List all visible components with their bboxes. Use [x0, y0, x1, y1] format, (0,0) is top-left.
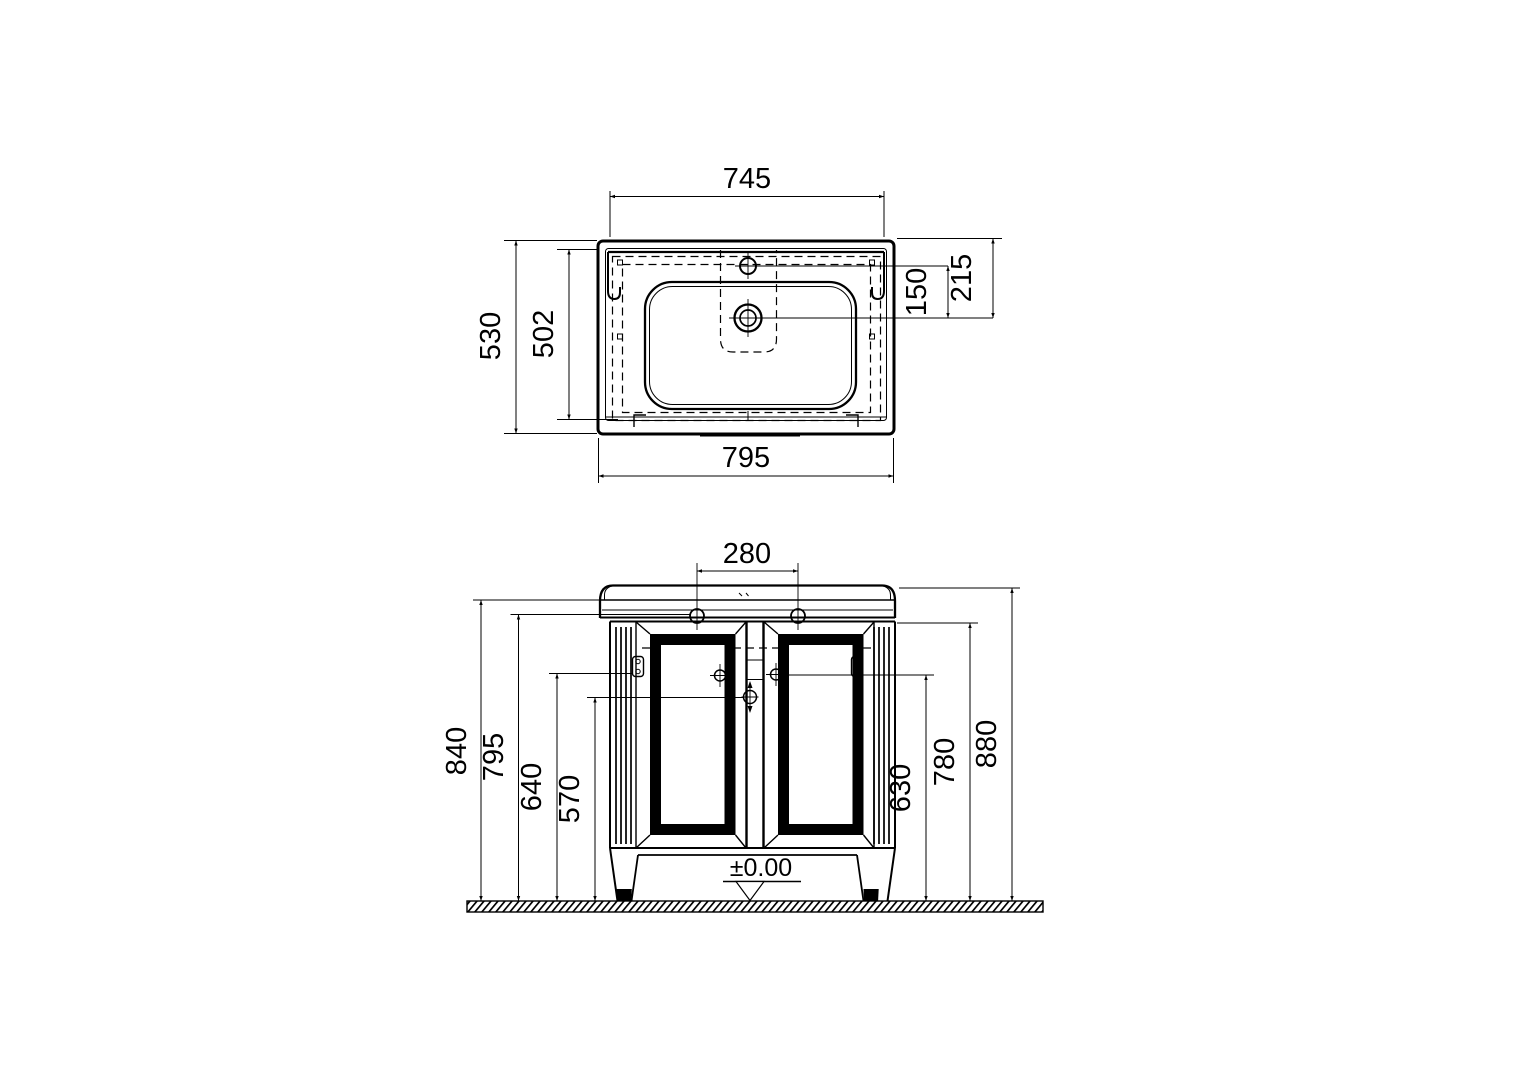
dim-hole-spacing: 280: [697, 538, 798, 571]
drain-hole: [729, 299, 767, 337]
floor-level-label: ±0.00: [730, 854, 792, 882]
right-door-panel: [789, 645, 853, 824]
dim-280-label: 280: [723, 538, 771, 570]
dim-width-top: 745: [610, 163, 884, 237]
dim-502-label: 502: [528, 310, 560, 358]
dim-150-label: 150: [901, 268, 933, 316]
dim-880-label: 880: [971, 720, 1003, 768]
drain-crosshair: [729, 299, 767, 337]
basin-outer-edge: [598, 241, 894, 434]
rim-recess-left: [608, 252, 620, 299]
fixing-marker: [618, 260, 623, 265]
basin-front-profile: [600, 586, 895, 619]
basin-plan-outline: [598, 241, 894, 435]
dim-780: 780: [897, 623, 978, 901]
drawing-page: 745 795 530 502 150 215: [0, 0, 1530, 1080]
hinge-left: [633, 657, 644, 677]
dim-840: 840: [441, 600, 600, 901]
fixing-marker: [618, 334, 623, 339]
dim-745-label: 745: [723, 163, 771, 195]
dim-570-label: 570: [554, 775, 586, 823]
faucet-deck-hidden-band: [721, 250, 777, 352]
top-view: 745 795 530 502 150 215: [475, 163, 1002, 483]
dim-795-front-label: 795: [478, 733, 510, 781]
dim-840-label: 840: [441, 727, 473, 775]
mounting-holes: [690, 563, 805, 630]
cabinet-left-door: [636, 622, 746, 848]
bowl-outer: [645, 282, 856, 409]
center-stile: [742, 622, 764, 848]
dim-640-label: 640: [516, 763, 548, 811]
floor-level-marker: ±0.00: [723, 854, 801, 901]
dim-depth-inner: 502: [528, 250, 618, 420]
dim-215-label: 215: [946, 254, 978, 302]
dim-width-bottom: 795: [599, 438, 894, 483]
basin-bowl: [645, 282, 856, 409]
fluting-left: [616, 627, 631, 844]
dim-630-label: 630: [885, 764, 917, 812]
rim-recess-right: [872, 252, 884, 299]
dim-780-label: 780: [929, 738, 961, 786]
dim-795-top-label: 795: [722, 442, 770, 474]
front-view: ±0.00 280 840 795 640 570: [441, 538, 1043, 912]
technical-drawing: 745 795 530 502 150 215: [0, 0, 1530, 1080]
dim-530-label: 530: [475, 312, 507, 360]
ground-line: [467, 901, 1043, 912]
washbasin-front: [600, 586, 895, 619]
